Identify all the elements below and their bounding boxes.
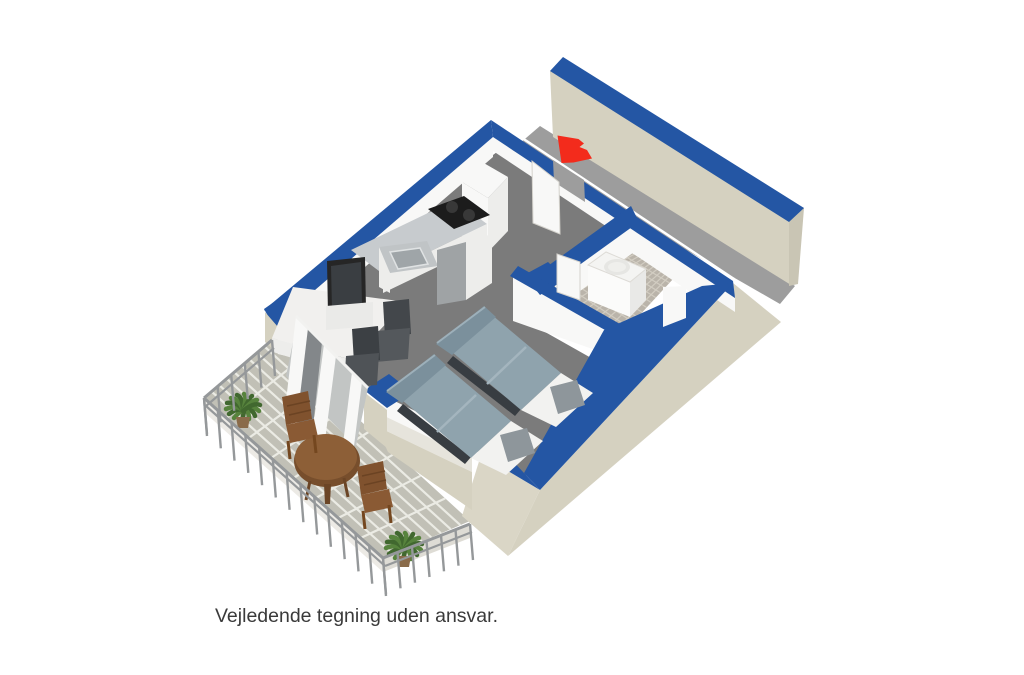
svg-text:Vejledende tegning uden ansvar: Vejledende tegning uden ansvar. bbox=[215, 605, 498, 627]
